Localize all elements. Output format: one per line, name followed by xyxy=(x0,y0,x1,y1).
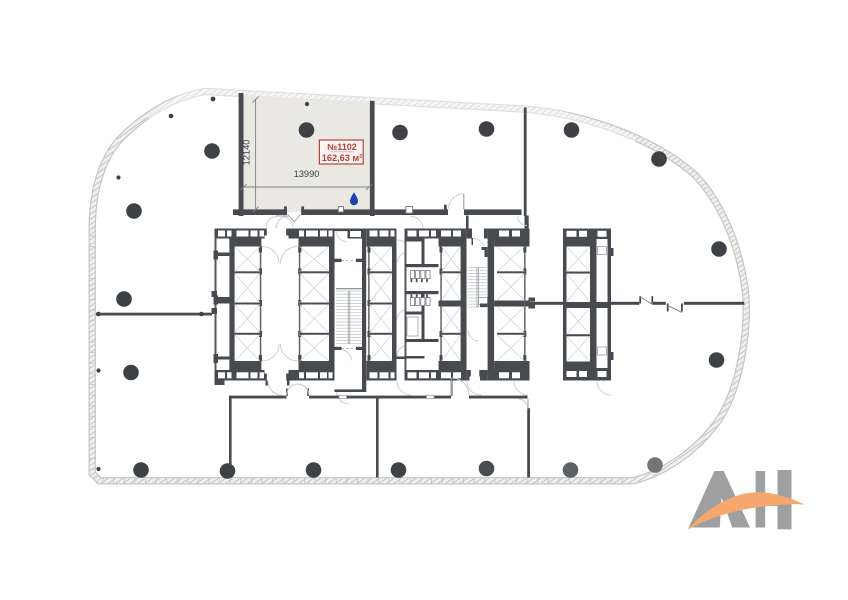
svg-text:№1102: №1102 xyxy=(327,142,357,152)
svg-text:12140: 12140 xyxy=(242,140,252,166)
svg-text:162,63 м²: 162,63 м² xyxy=(322,153,363,163)
svg-text:13990: 13990 xyxy=(294,169,320,179)
